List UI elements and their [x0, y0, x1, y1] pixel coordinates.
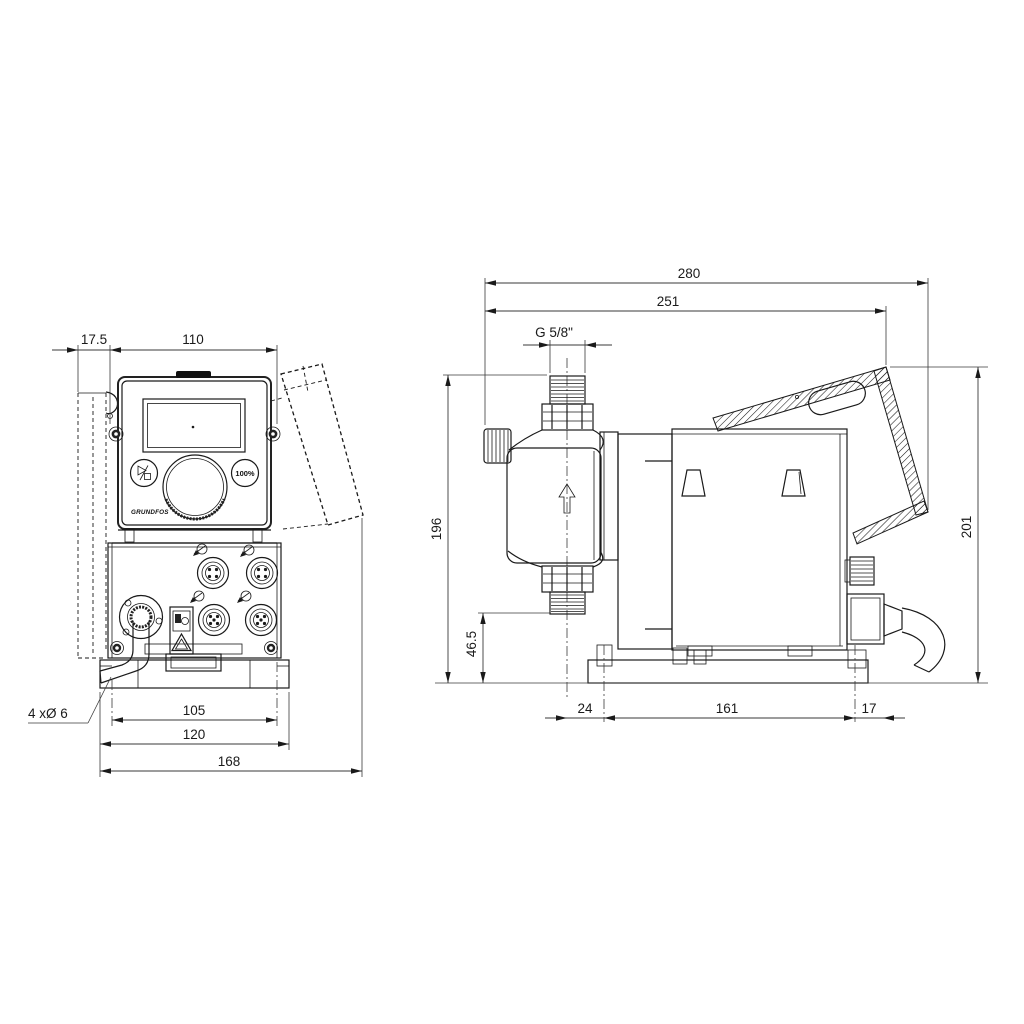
control-panel: 100% GRUNDFOS: [118, 371, 271, 529]
m12-connector-top-right[interactable]: [247, 558, 278, 589]
warning-triangle-icon: [172, 634, 191, 651]
dim-height-suction-label: 196: [429, 518, 444, 541]
side-dimensions: 280 251 G 5/8" 196 46.5: [429, 266, 988, 721]
dim-height-inlet-label: 46.5: [464, 631, 479, 657]
housing-screw-right: [265, 642, 278, 655]
signal-icon-4: [237, 591, 251, 603]
warning-label: [170, 607, 193, 654]
signal-icon-1: [193, 544, 207, 556]
dim-thread-label: G 5/8": [535, 325, 573, 340]
grundfos-logo: GRUNDFOS: [131, 509, 169, 516]
bracket-hook: [106, 392, 118, 419]
signal-icon-3: [190, 591, 204, 603]
dimensional-drawing: 100% GRUNDFOS: [0, 0, 1024, 1024]
housing-screw-left: [111, 642, 124, 655]
hole-note-label: 4 xØ 6: [28, 706, 68, 721]
dim-plate-width-label: 120: [183, 727, 206, 742]
dim-hole-spacing-label: 105: [183, 703, 206, 718]
m12-connector-bottom-left[interactable]: [199, 605, 230, 636]
dim-offset-label: 17.5: [81, 332, 107, 347]
dosing-head: [507, 448, 601, 563]
dim-hole-spacing-side-label: 161: [716, 701, 739, 716]
housing-clip-right: [782, 470, 805, 496]
front-view: 100% GRUNDFOS: [28, 332, 363, 777]
inlet-valve: [508, 551, 603, 614]
outlet-valve: [509, 376, 603, 450]
dim-overall-depth-label: 280: [678, 266, 701, 281]
m12-connector-top-left[interactable]: [198, 558, 229, 589]
cable-gland-flange: [120, 596, 163, 639]
control-hood: [713, 367, 928, 544]
capacity-100-label: 100%: [235, 469, 255, 478]
drawing-svg: 100% GRUNDFOS: [0, 0, 1024, 1024]
housing-clip-left: [682, 470, 705, 496]
dim-front-offset-label: 24: [577, 701, 593, 716]
hood-release-tab: [176, 371, 211, 378]
pump-housing: [600, 429, 847, 656]
dim-rear-offset-label: 17: [861, 701, 876, 716]
dim-overall-width-label: 168: [218, 754, 241, 769]
dim-overall-height-label: 201: [959, 516, 974, 539]
m12-connector-bottom-right[interactable]: [246, 605, 277, 636]
hood-rotated-outline: [271, 364, 363, 529]
rear-cable-gland: [845, 557, 874, 585]
hood-bottom-strip: [112, 529, 277, 543]
manual-icon: [175, 614, 181, 623]
dim-width-label: 110: [182, 332, 204, 347]
dim-depth-to-hood-label: 251: [657, 294, 680, 309]
wall-mounting-plate: [78, 393, 106, 658]
side-view: 280 251 G 5/8" 196 46.5: [429, 266, 988, 722]
